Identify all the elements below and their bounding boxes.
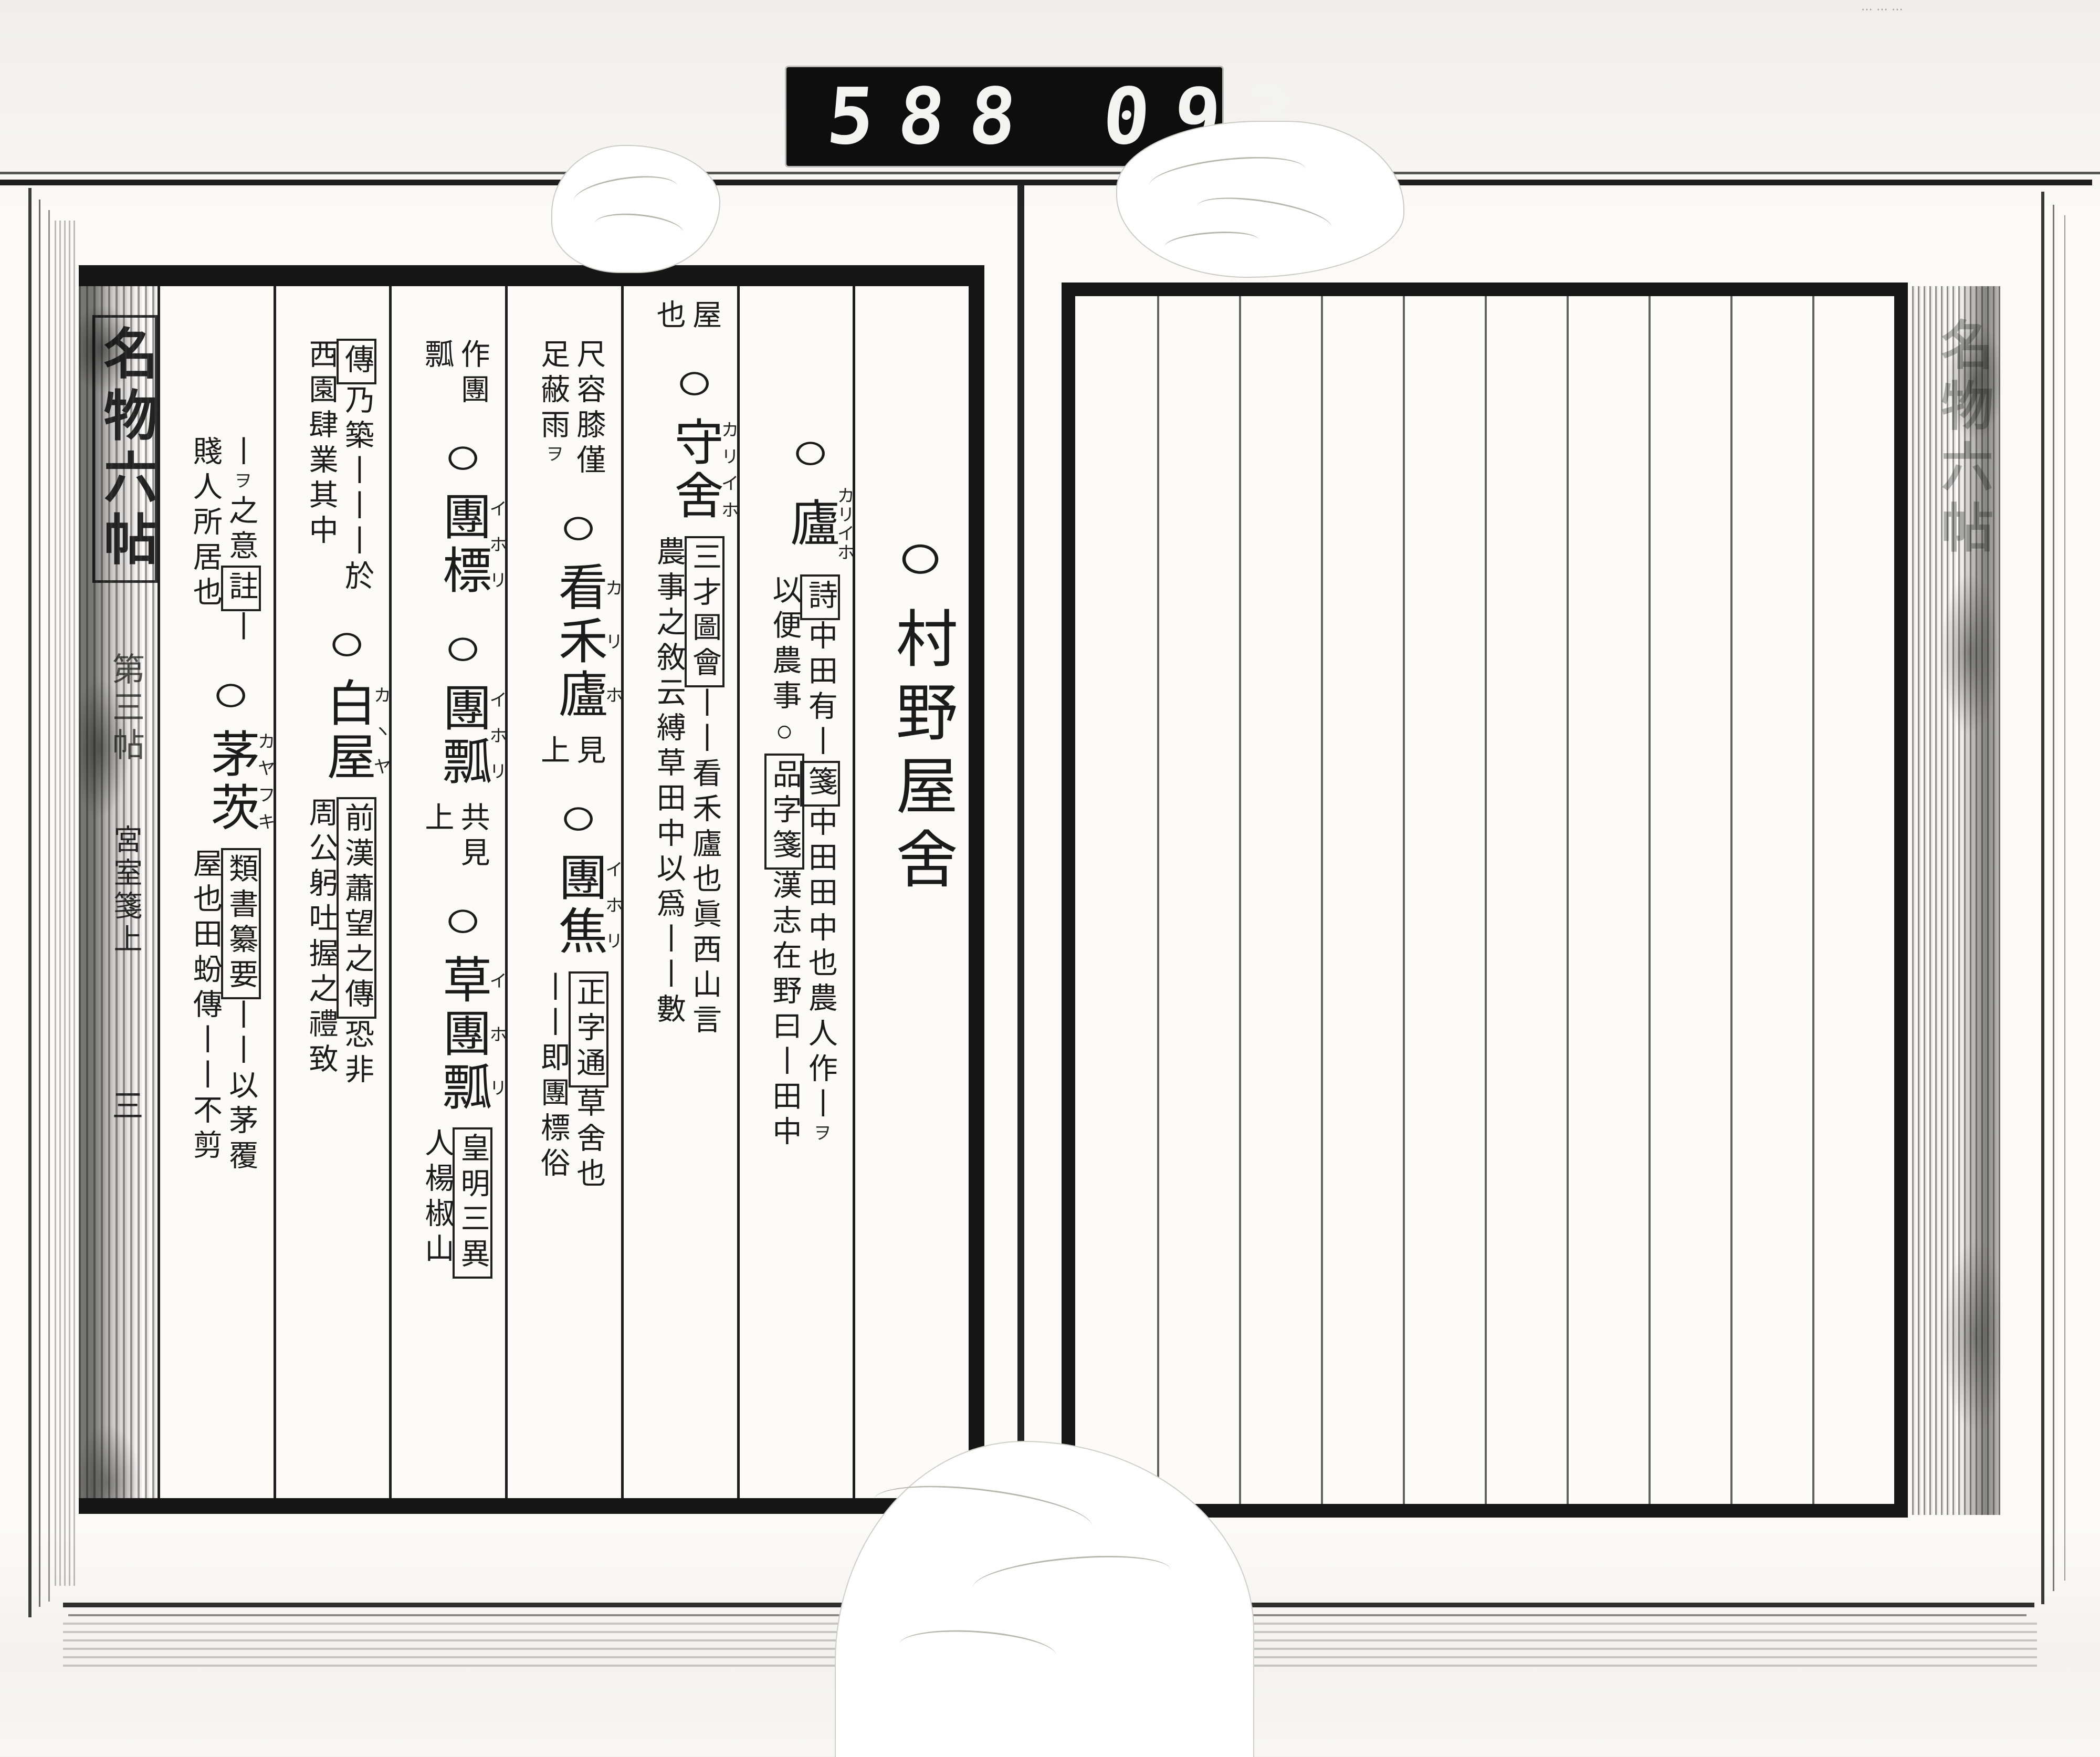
furigana: カリイホ bbox=[834, 486, 853, 562]
warichu-left-line: 上 bbox=[534, 735, 570, 770]
text-column-entry-ro: ○廬カリイホ詩中田有丨箋中田田中也農人作丨ヲ以便農事○品字箋漢志在野曰丨田中 bbox=[737, 286, 853, 1498]
headword-with-furigana: 茅茨カヤフキ bbox=[204, 728, 258, 835]
empty-column-rule bbox=[1239, 296, 1241, 1504]
empty-column-rule bbox=[1485, 296, 1487, 1504]
entry-headword: ○團標イホリ bbox=[435, 422, 490, 598]
page-number: 三 bbox=[102, 1089, 148, 1121]
page-right-edge-line bbox=[2064, 215, 2065, 1581]
book-scan: 588 093 . ⋯⋯⋯ 名物六帖 第三帖 宮室箋上 三 丨ヲ之意註丨賤人所居… bbox=[0, 0, 2100, 1756]
warichu-right-line: 見 bbox=[571, 735, 606, 770]
page-stack-texture-left bbox=[55, 221, 77, 1586]
text-column-entry-boushi: 丨ヲ之意註丨賤人所居也○茅茨カヤフキ類書纂要丨丨以茅覆屋也田蚡傳丨丨不剪 bbox=[157, 286, 274, 1498]
hanshin-title-strip-left: 名物六帖 第三帖 宮室箋上 三 bbox=[79, 286, 157, 1498]
empty-column-rule bbox=[1157, 296, 1159, 1504]
warichu-left-line: 西園肆業其中 bbox=[303, 339, 339, 595]
binding-gutter-line bbox=[1017, 185, 1024, 1603]
page-right-edge-line bbox=[2053, 205, 2054, 1591]
source-title-box: 傳 bbox=[337, 339, 376, 384]
warichu-annotation: 前漢蕭望之傳恐非周公躬吐握之禮致 bbox=[303, 797, 375, 1089]
entry-headword: ○廬カリイホ bbox=[783, 417, 837, 562]
entry-circle-mark: ○ bbox=[428, 427, 497, 490]
empty-column-rule bbox=[1321, 296, 1323, 1504]
source-title-box: 前漢蕭望之傳 bbox=[337, 797, 376, 1019]
kunten-mark: ヲ bbox=[231, 471, 251, 495]
source-title-box: 詩 bbox=[800, 574, 840, 620]
source-title-box: 類書纂要 bbox=[221, 848, 261, 999]
right-page-ruled-frame bbox=[1062, 283, 1908, 1518]
warichu-left-line: 賤人所居也 bbox=[187, 436, 223, 646]
text-column-entry-shusha: 屋也○守舍カリイホ三才圖會丨丨看禾廬也眞西山言農事之敘云縛草田中以爲丨丨數 bbox=[621, 286, 737, 1498]
furigana: カリイホ bbox=[718, 416, 737, 524]
page-left-edge-line bbox=[48, 210, 50, 1602]
warichu-annotation: 正字通草舍也丨丨即團標俗 bbox=[534, 971, 606, 1193]
page-left-edge-line bbox=[28, 188, 31, 1617]
entry-headword: ○草團瓢イホリ bbox=[435, 885, 490, 1115]
empty-column-rule bbox=[1648, 296, 1651, 1504]
hanshin-title-strip-right: 名物六帖 bbox=[1912, 286, 2000, 1515]
warichu-right-line: 屋 bbox=[686, 299, 722, 334]
entry-headword: ○看禾廬カリホ bbox=[551, 492, 606, 722]
warichu-annotation: 三才圖會丨丨看禾廬也眞西山言農事之敘云縛草田中以爲丨丨數 bbox=[650, 536, 722, 1039]
torn-paper-patch bbox=[1117, 122, 1403, 277]
warichu-annotation: 屋也 bbox=[650, 299, 722, 334]
page-top-edge-line bbox=[0, 172, 2100, 174]
warichu-left-line: 周公躬吐握之禮致 bbox=[303, 797, 339, 1089]
warichu-left-line: 上 bbox=[419, 802, 455, 872]
left-page-text-frame: 名物六帖 第三帖 宮室箋上 三 丨ヲ之意註丨賤人所居也○茅茨カヤフキ類書纂要丨丨… bbox=[79, 265, 984, 1514]
warichu-annotation: 丨ヲ之意註丨賤人所居也 bbox=[187, 436, 259, 646]
entry-headword: ○白屋カヽヤ bbox=[319, 608, 374, 785]
warichu-annotation: 詩中田有丨箋中田田中也農人作丨ヲ以便農事○品字箋漢志在野曰丨田中 bbox=[766, 574, 838, 1151]
warichu-right-line: 傳乃築丨丨丨於 bbox=[339, 339, 374, 595]
entry-circle-mark: ○ bbox=[877, 519, 963, 605]
warichu-left-line: 瓢 bbox=[419, 339, 455, 409]
entry-headword: ○團焦イホリ bbox=[551, 782, 606, 959]
headword-with-furigana: 守舍カリイホ bbox=[667, 416, 722, 524]
page-bottom-edge-line bbox=[1234, 1603, 2034, 1607]
warichu-right-line: 共見 bbox=[455, 802, 490, 872]
source-title-box: 註 bbox=[221, 566, 261, 611]
warichu-left-line: 丨丨即團標俗 bbox=[534, 971, 570, 1193]
warichu-annotation: 見上 bbox=[534, 735, 606, 770]
counter-digits-left: 588 bbox=[824, 78, 1044, 155]
warichu-annotation: 尺容膝僅足蔽雨ヲ bbox=[534, 339, 606, 479]
warichu-left-line: 足蔽雨ヲ bbox=[534, 339, 570, 479]
warichu-annotation: 皇明三異人楊椒山 bbox=[419, 1127, 491, 1279]
entry-circle-mark: ○ bbox=[660, 352, 728, 415]
warichu-right-line: 尺容膝僅 bbox=[571, 339, 606, 479]
source-title-box: 三才圖會 bbox=[685, 536, 724, 687]
torn-paper-patch bbox=[552, 146, 719, 272]
headword-with-furigana: 草團瓢イホリ bbox=[435, 954, 490, 1115]
entry-headword: ○村野屋舍 bbox=[886, 514, 955, 901]
headword-with-furigana: 看禾廬カリホ bbox=[551, 561, 606, 722]
warichu-right-line: 作團 bbox=[455, 339, 490, 409]
entry-circle-mark: ○ bbox=[428, 890, 497, 953]
headword-with-furigana: 團瓢イホリ bbox=[435, 682, 490, 789]
entry-circle-mark: ○ bbox=[196, 664, 265, 727]
entry-circle-mark: ○ bbox=[776, 422, 844, 485]
page-right-edge-line bbox=[2041, 192, 2044, 1604]
furigana: カヤフキ bbox=[255, 728, 274, 835]
volume-label: 第三帖 bbox=[101, 652, 149, 766]
warichu-right-line: 前漢蕭望之傳恐非 bbox=[339, 797, 374, 1089]
corner-smudge-text: ⋯⋯⋯ bbox=[1861, 3, 1907, 16]
source-title-box: 皇明三異 bbox=[453, 1127, 492, 1279]
furigana: イホリ bbox=[487, 491, 506, 598]
book-title-faded: 名物六帖 bbox=[1933, 318, 1991, 561]
empty-column-rule bbox=[1567, 296, 1569, 1504]
furigana: イホリ bbox=[487, 682, 506, 789]
furigana: カヽヤ bbox=[371, 677, 390, 785]
kunten-mark: ヲ bbox=[810, 1123, 831, 1147]
warichu-right-line: 三才圖會丨丨看禾廬也眞西山言 bbox=[686, 536, 722, 1039]
entry-circle-mark: ○ bbox=[312, 613, 381, 676]
empty-column-rule bbox=[1812, 296, 1814, 1504]
source-title-box: 正字通 bbox=[569, 971, 608, 1087]
warichu-left-line: 人楊椒山 bbox=[419, 1127, 455, 1279]
warichu-right-line: 皇明三異 bbox=[455, 1127, 490, 1279]
warichu-left-line: 農事之敘云縛草田中以爲丨丨數 bbox=[650, 536, 686, 1039]
warichu-right-line: 正字通草舍也 bbox=[571, 971, 606, 1193]
warichu-annotation: 作團瓢 bbox=[419, 339, 491, 409]
page-top-edge-line bbox=[0, 180, 2092, 185]
kunten-mark: ヲ bbox=[543, 444, 563, 468]
headword-with-furigana: 團焦イホリ bbox=[551, 852, 606, 959]
furigana: カリホ bbox=[602, 561, 621, 722]
entry-headword: ○團瓢イホリ bbox=[435, 613, 490, 789]
entry-circle-mark: ○ bbox=[544, 788, 613, 851]
empty-column-rule bbox=[1403, 296, 1405, 1504]
warichu-right-line: 類書纂要丨丨以茅覆 bbox=[223, 848, 258, 1175]
furigana: イホリ bbox=[602, 852, 621, 959]
warichu-left-line: 以便農事○品字箋漢志在野曰丨田中 bbox=[766, 574, 802, 1151]
entry-headword: ○茅茨カヤフキ bbox=[204, 659, 258, 835]
section-label: 宮室箋上 bbox=[104, 824, 146, 957]
book-title: 名物六帖 bbox=[92, 315, 157, 583]
warichu-right-line: 丨ヲ之意註丨 bbox=[223, 436, 258, 646]
warichu-left-line: 也 bbox=[650, 299, 686, 334]
entry-circle-mark: ○ bbox=[428, 618, 497, 681]
text-column-entry-hakuoku: 傳乃築丨丨丨於西園肆業其中○白屋カヽヤ前漢蕭望之傳恐非周公躬吐握之禮致 bbox=[274, 286, 390, 1498]
furigana: イホリ bbox=[487, 954, 506, 1115]
warichu-left-line: 屋也田蚡傳丨丨不剪 bbox=[187, 848, 223, 1175]
page-bottom-edge-line bbox=[63, 1603, 856, 1607]
page-left-edge-line bbox=[39, 200, 40, 1607]
source-title-box: 箋 bbox=[800, 761, 840, 807]
empty-column-rule bbox=[1730, 296, 1732, 1504]
headword-with-furigana: 團標イホリ bbox=[435, 491, 490, 598]
entry-circle-mark: ○ bbox=[544, 497, 613, 560]
text-column-entry-danpyo: 作團瓢○團標イホリ○團瓢イホリ共見上○草團瓢イホリ皇明三異人楊椒山 bbox=[389, 286, 505, 1498]
warichu-right-line: 詩中田有丨箋中田田中也農人作丨ヲ bbox=[802, 574, 838, 1151]
warichu-annotation: 共見上 bbox=[419, 802, 491, 872]
warichu-annotation: 傳乃築丨丨丨於西園肆業其中 bbox=[303, 339, 375, 595]
text-column-section-header: ○村野屋舍 bbox=[853, 286, 969, 1498]
source-title-box: 品字箋 bbox=[764, 754, 804, 870]
text-column-entry-kankaro-dansho: 尺容膝僅足蔽雨ヲ○看禾廬カリホ見上○團焦イホリ正字通草舍也丨丨即團標俗 bbox=[505, 286, 621, 1498]
entry-headword: ○守舍カリイホ bbox=[667, 347, 722, 524]
headword-with-furigana: 廬カリイホ bbox=[783, 486, 837, 562]
headword-with-furigana: 白屋カヽヤ bbox=[319, 677, 374, 785]
warichu-annotation: 類書纂要丨丨以茅覆屋也田蚡傳丨丨不剪 bbox=[187, 848, 259, 1175]
